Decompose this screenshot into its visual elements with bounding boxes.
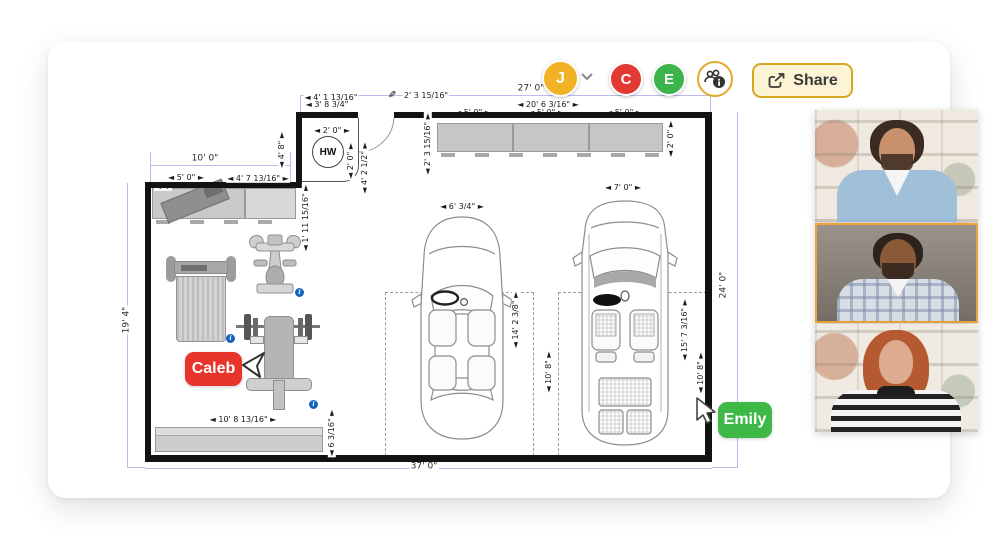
treadmill-console bbox=[174, 261, 228, 274]
participant-1-figure bbox=[815, 110, 978, 222]
shelf-top-strip bbox=[156, 428, 322, 436]
bench-spine bbox=[273, 380, 285, 410]
dim-tick bbox=[290, 152, 291, 182]
share-label: Share bbox=[793, 72, 837, 90]
treadmill-belt bbox=[176, 276, 226, 342]
share-icon bbox=[767, 72, 786, 90]
avatar-e[interactable]: E bbox=[652, 62, 686, 96]
dim-tick bbox=[127, 467, 145, 468]
dimension-label: ◄ 4' 7 13/16" ► bbox=[226, 175, 290, 183]
barbell-plate bbox=[298, 318, 303, 336]
workbench-right[interactable] bbox=[245, 188, 296, 219]
dimension-label: ◄ 4' 2 1/2" ► bbox=[361, 141, 369, 194]
participant-video-3[interactable] bbox=[815, 324, 978, 432]
emily-cursor-icon bbox=[694, 396, 718, 426]
dim-line-27ft bbox=[300, 95, 711, 96]
dimension-label: ◄ 2' 3 15/16" ► bbox=[424, 112, 432, 176]
wall-top-left[interactable] bbox=[296, 112, 358, 118]
cabinet-2[interactable] bbox=[513, 123, 589, 152]
dim-tick bbox=[150, 152, 151, 182]
emily-name: Emily bbox=[724, 411, 767, 429]
participant-video-1[interactable] bbox=[815, 110, 978, 222]
wall-left[interactable] bbox=[145, 182, 151, 462]
wall-top[interactable] bbox=[394, 112, 712, 118]
workbench-feet bbox=[156, 220, 292, 224]
screen: J C E Share bbox=[0, 0, 1000, 550]
car-sedan[interactable] bbox=[415, 214, 509, 442]
dimension-label: ◄ 14' 2 3/8" ► bbox=[512, 291, 520, 350]
wall-notch[interactable] bbox=[296, 112, 302, 188]
exercise-bike[interactable] bbox=[246, 232, 304, 296]
caleb-name: Caleb bbox=[192, 360, 236, 378]
cursor-label-emily: Emily bbox=[718, 402, 772, 438]
dimension-label: ◄ 10' 8" ► bbox=[697, 351, 705, 394]
dimension-label: ◄ 6 3/16" ► bbox=[328, 409, 336, 458]
participant-video-2[interactable] bbox=[815, 223, 978, 323]
dimension-label: ◄ 15' 7 3/16" ► bbox=[681, 298, 689, 362]
chevron-down-icon[interactable] bbox=[581, 73, 593, 81]
dimension-label: ◄ 10' 8 13/16" ► bbox=[209, 416, 278, 424]
water-heater[interactable]: HW bbox=[312, 136, 344, 168]
water-heater-label: HW bbox=[320, 147, 337, 158]
bench-handle bbox=[294, 336, 308, 344]
dimension-label: ◄ 4' 8" ► bbox=[278, 131, 286, 169]
dimension-label: ◄ 2' 0" ► bbox=[667, 120, 675, 158]
cursor-label-caleb: Caleb bbox=[185, 352, 242, 386]
people-info-icon[interactable] bbox=[697, 61, 733, 97]
dimension-label: ◄ 2' 0" ► bbox=[347, 142, 355, 180]
dimension-label: 19' 4" bbox=[122, 306, 131, 335]
dimension-label: 27' 0" bbox=[517, 84, 546, 93]
participant-3-figure bbox=[815, 324, 978, 432]
dimension-label: ◄ 5' 0" ► bbox=[167, 174, 205, 182]
caleb-cursor-icon bbox=[240, 351, 266, 379]
dimension-label: 37' 0" bbox=[410, 462, 439, 471]
cabinet-feet bbox=[441, 153, 659, 157]
dimension-label: ◄ 20' 6 3/16" ► bbox=[516, 101, 580, 109]
dimension-label: ◄ 10' 8" ► bbox=[545, 350, 553, 393]
avatar-c[interactable]: C bbox=[609, 62, 643, 96]
dim-line-10ft bbox=[150, 165, 290, 166]
dimension-label: 24' 0" bbox=[719, 271, 728, 300]
dimension-label: 10' 0" bbox=[191, 154, 220, 163]
info-icon[interactable]: i bbox=[309, 400, 318, 409]
dim-tick bbox=[710, 95, 711, 112]
car-suv[interactable] bbox=[577, 198, 673, 448]
info-icon[interactable]: i bbox=[295, 288, 304, 297]
bench-handle bbox=[250, 336, 264, 344]
dim-tick bbox=[712, 467, 737, 468]
dimension-label: ◄ 1' 11 15/16" ► bbox=[302, 184, 310, 253]
share-button[interactable]: Share bbox=[752, 63, 853, 98]
dim-tick bbox=[300, 95, 301, 112]
info-icon[interactable]: i bbox=[226, 334, 235, 343]
dimension-label: 2' 3 15/16" bbox=[403, 92, 449, 100]
barbell-plate bbox=[253, 318, 258, 336]
dimension-label: ◄ 2' 0" ► bbox=[313, 127, 351, 135]
dimension-label: ◄ 3' 8 3/4" bbox=[305, 101, 350, 109]
storage-shelf[interactable] bbox=[155, 427, 323, 452]
treadmill[interactable] bbox=[166, 256, 236, 346]
pencil-cursor-icon: ✎ bbox=[388, 90, 396, 101]
dimension-label: ◄ 7' 0" ► bbox=[604, 184, 642, 192]
avatar-j[interactable]: J bbox=[542, 60, 579, 97]
dimension-label: ◄ 6' 3/4" ► bbox=[439, 203, 485, 211]
cabinet-1[interactable] bbox=[437, 123, 513, 152]
participant-2-figure bbox=[817, 225, 976, 321]
cabinet-3[interactable] bbox=[589, 123, 663, 152]
bench-pad bbox=[264, 316, 294, 382]
